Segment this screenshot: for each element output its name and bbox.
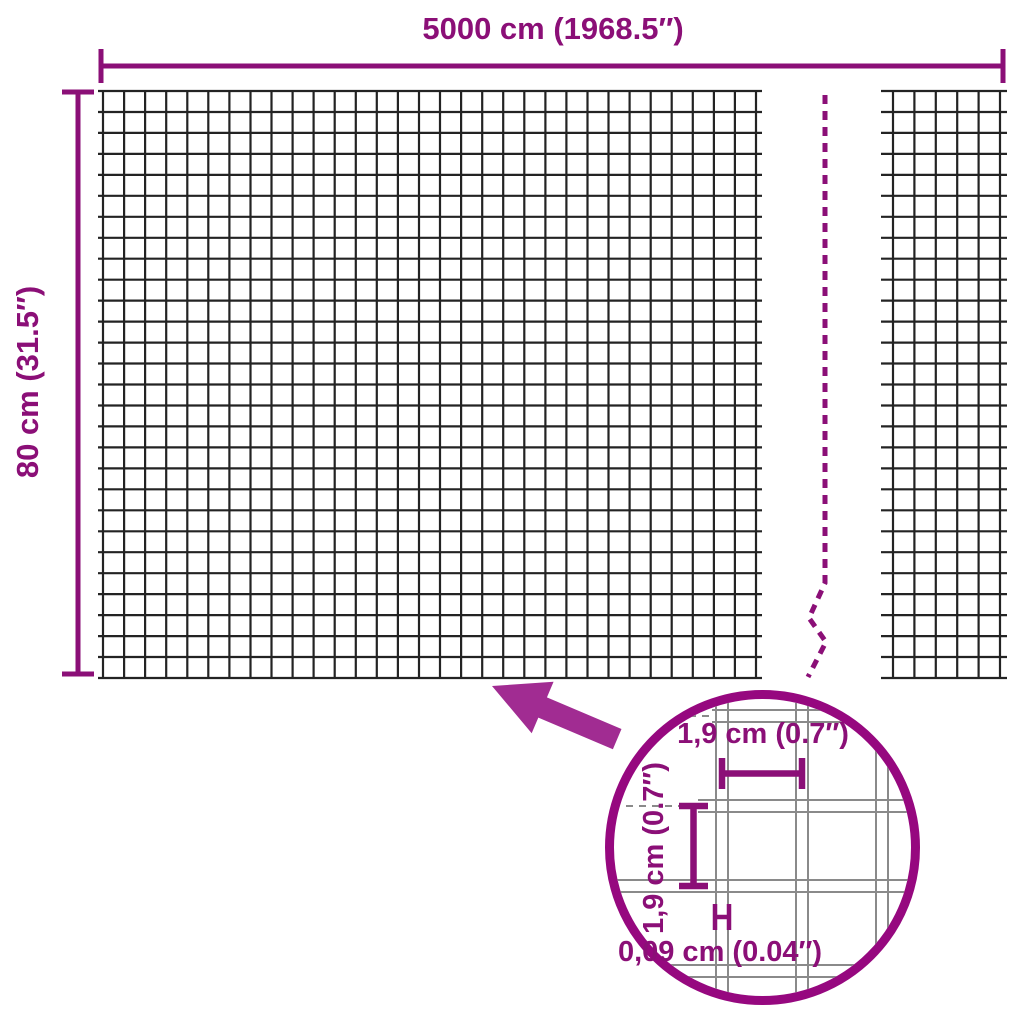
wire-mesh-panel-right <box>881 91 1007 678</box>
wire-mesh-panel-main <box>98 91 762 678</box>
height-dimension-label: 80 cm (31.5″) <box>10 286 45 478</box>
width-dimension-line <box>101 49 1003 83</box>
detail-wire-thickness-label: 0,09 cm (0.04″) <box>618 936 822 968</box>
height-dimension-line <box>62 92 94 674</box>
detail-mesh-width-label: 1,9 cm (0.7″) <box>677 718 849 750</box>
detail-mesh-height-label: 1,9 cm (0.7″) <box>638 762 670 934</box>
product-dimension-diagram: 5000 cm (1968.5″) 80 cm (31.5″) 1,9 cm (… <box>0 0 1024 1024</box>
width-dimension: 5000 cm (1968.5″) <box>101 11 1003 83</box>
height-dimension: 80 cm (31.5″) <box>10 92 94 674</box>
diagram-canvas: 5000 cm (1968.5″) 80 cm (31.5″) 1,9 cm (… <box>0 0 1024 1024</box>
width-dimension-label: 5000 cm (1968.5″) <box>422 11 683 46</box>
break-line <box>808 95 826 677</box>
